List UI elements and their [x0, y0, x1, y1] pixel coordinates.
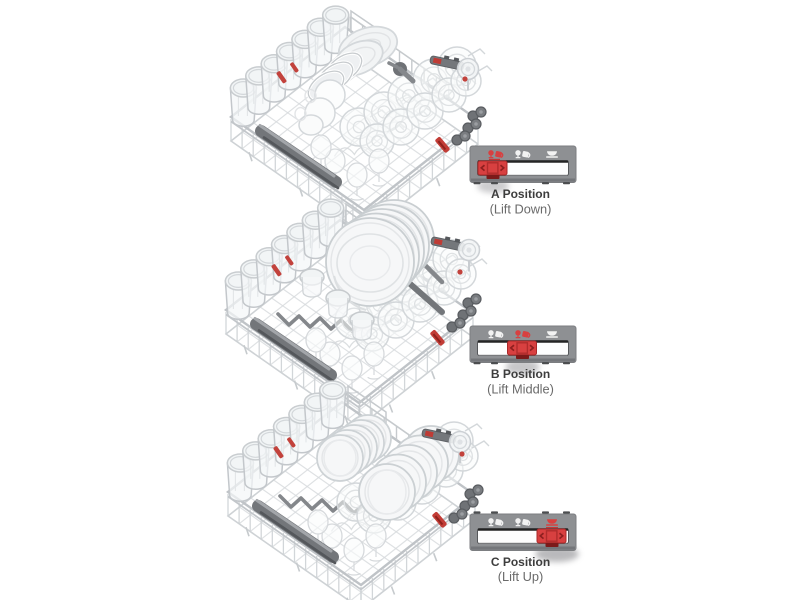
svg-text:A Position: A Position	[491, 187, 550, 201]
svg-text:(Lift Middle): (Lift Middle)	[487, 382, 554, 397]
svg-text:(Lift Down): (Lift Down)	[490, 202, 552, 217]
svg-text:C Position: C Position	[491, 555, 550, 569]
svg-text:B Position: B Position	[491, 367, 550, 381]
svg-text:(Lift Up): (Lift Up)	[498, 569, 544, 584]
